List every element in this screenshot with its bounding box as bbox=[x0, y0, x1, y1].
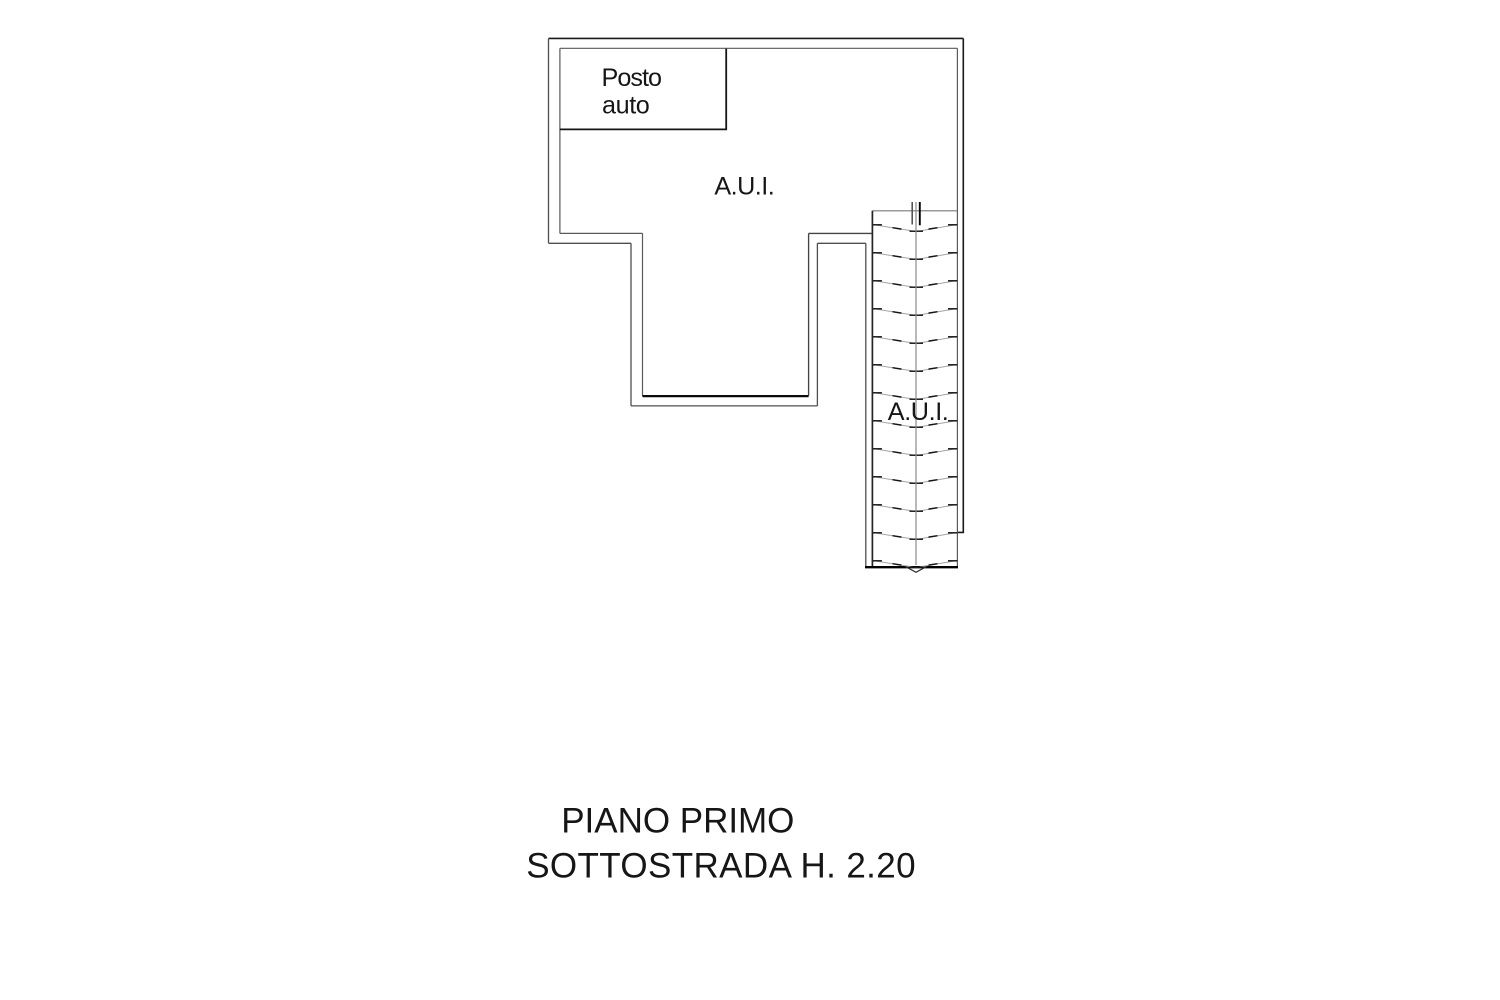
svg-text:SOTTOSTRADA H. 2.20: SOTTOSTRADA H. 2.20 bbox=[526, 847, 915, 886]
svg-text:A.U.I.: A.U.I. bbox=[714, 172, 774, 200]
svg-text:auto: auto bbox=[602, 91, 650, 119]
svg-text:Posto: Posto bbox=[602, 64, 663, 92]
svg-text:A.U.I.: A.U.I. bbox=[888, 398, 949, 426]
svg-text:PIANO PRIMO: PIANO PRIMO bbox=[561, 802, 794, 841]
